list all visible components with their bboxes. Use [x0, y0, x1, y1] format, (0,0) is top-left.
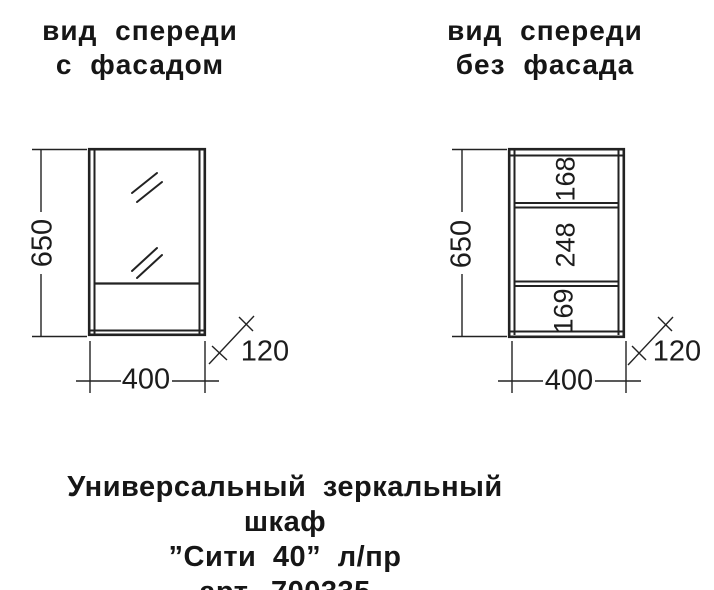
- left-view-title-line1: вид спереди: [30, 14, 250, 48]
- right-view-title-line1: вид спереди: [435, 14, 655, 48]
- product-caption: Универсальный зеркальный шкаф ”Сити 40” …: [35, 470, 535, 590]
- right-height-dimension-label: 650: [446, 220, 479, 268]
- shelf-dimension-label-bottom: 169: [549, 288, 580, 333]
- product-name: Универсальный зеркальный шкаф: [35, 470, 535, 540]
- product-model: ”Сити 40” л/пр: [35, 540, 535, 575]
- right-depth-dimension-label: 120: [653, 336, 701, 369]
- left-height-dimension-label: 650: [27, 219, 60, 267]
- left-view-title-line2: с фасадом: [30, 48, 250, 82]
- technical-drawing-page: вид спереди с фасадом вид спереди без фа…: [0, 0, 714, 590]
- product-article: арт. 700335: [35, 575, 535, 590]
- left-depth-dimension-label: 120: [241, 336, 289, 369]
- shelf-dimension-label-middle: 248: [551, 222, 582, 267]
- left-view-title: вид спереди с фасадом: [30, 14, 250, 82]
- mirror-hatch-marks: [132, 173, 162, 278]
- right-width-dimension-label: 400: [545, 365, 593, 398]
- right-view-title-line2: без фасада: [435, 48, 655, 82]
- left-width-dimension-label: 400: [122, 364, 170, 397]
- shelf-dimension-label-top: 168: [551, 156, 582, 201]
- left-cabinet-outline: [89, 149, 205, 335]
- right-view-title: вид спереди без фасада: [435, 14, 655, 82]
